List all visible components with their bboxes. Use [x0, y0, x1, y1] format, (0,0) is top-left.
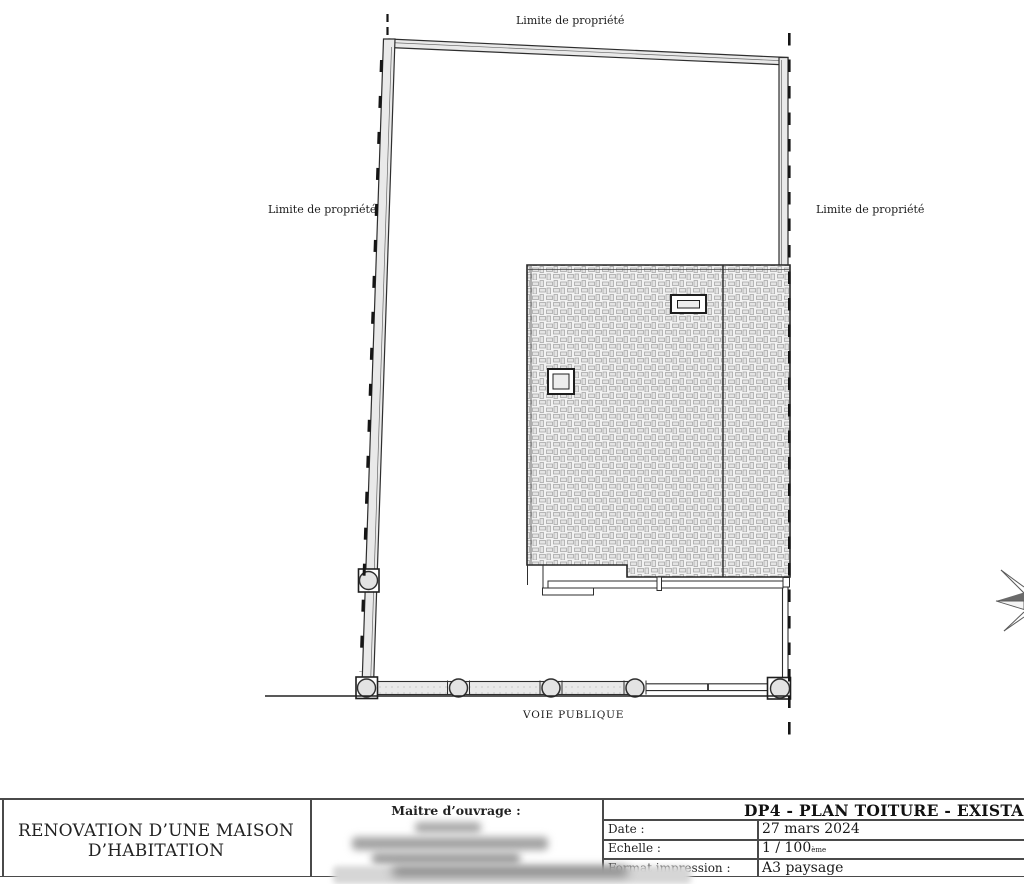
field-value-date: 27 mars 2024 [762, 821, 860, 837]
owner-label: Maitre d’ouvrage : [310, 803, 602, 818]
drawing-title: DP4 - PLAN TOITURE - EXISTANT [602, 801, 1024, 820]
property-wall-right [779, 58, 788, 267]
project-title: RENOVATION D’UNE MAISON D’HABITATION [2, 821, 310, 861]
roof-area [527, 265, 790, 577]
title-block-top-border [0, 798, 1024, 800]
public-road-label: VOIE PUBLIQUE [523, 709, 624, 721]
title-block-divider-3 [757, 819, 759, 877]
redacted-owner-line-1 [415, 822, 481, 833]
project-title-line2: D’HABITATION [2, 841, 310, 861]
field-label-date: Date : [608, 822, 645, 836]
redacted-owner-line-2 [352, 837, 548, 850]
chimney-rect [671, 295, 706, 313]
field-label-scale: Echelle : [608, 841, 661, 855]
redacted-bottom-bar-dark [392, 867, 628, 876]
redacted-owner-line-3 [372, 852, 520, 865]
scale-suffix: ème [811, 846, 826, 854]
right-lower-wall [783, 587, 789, 678]
compass-rose-icon [996, 570, 1024, 631]
field-value-scale: 1 / 100ème [762, 840, 826, 856]
boundary-label-top: Limite de propriété [516, 14, 624, 27]
project-title-line1: RENOVATION D’UNE MAISON [2, 821, 310, 841]
plan-sheet: Limite de propriété Limite de propriété … [0, 0, 1024, 884]
site-plan-drawing [0, 0, 1024, 790]
field-value-print-format: A3 paysage [762, 860, 843, 876]
boundary-label-right: Limite de propriété [816, 203, 924, 216]
property-wall-top [389, 39, 788, 65]
boundary-label-left: Limite de propriété [268, 203, 376, 216]
front-fence [376, 682, 768, 695]
skylight-square [548, 369, 574, 394]
